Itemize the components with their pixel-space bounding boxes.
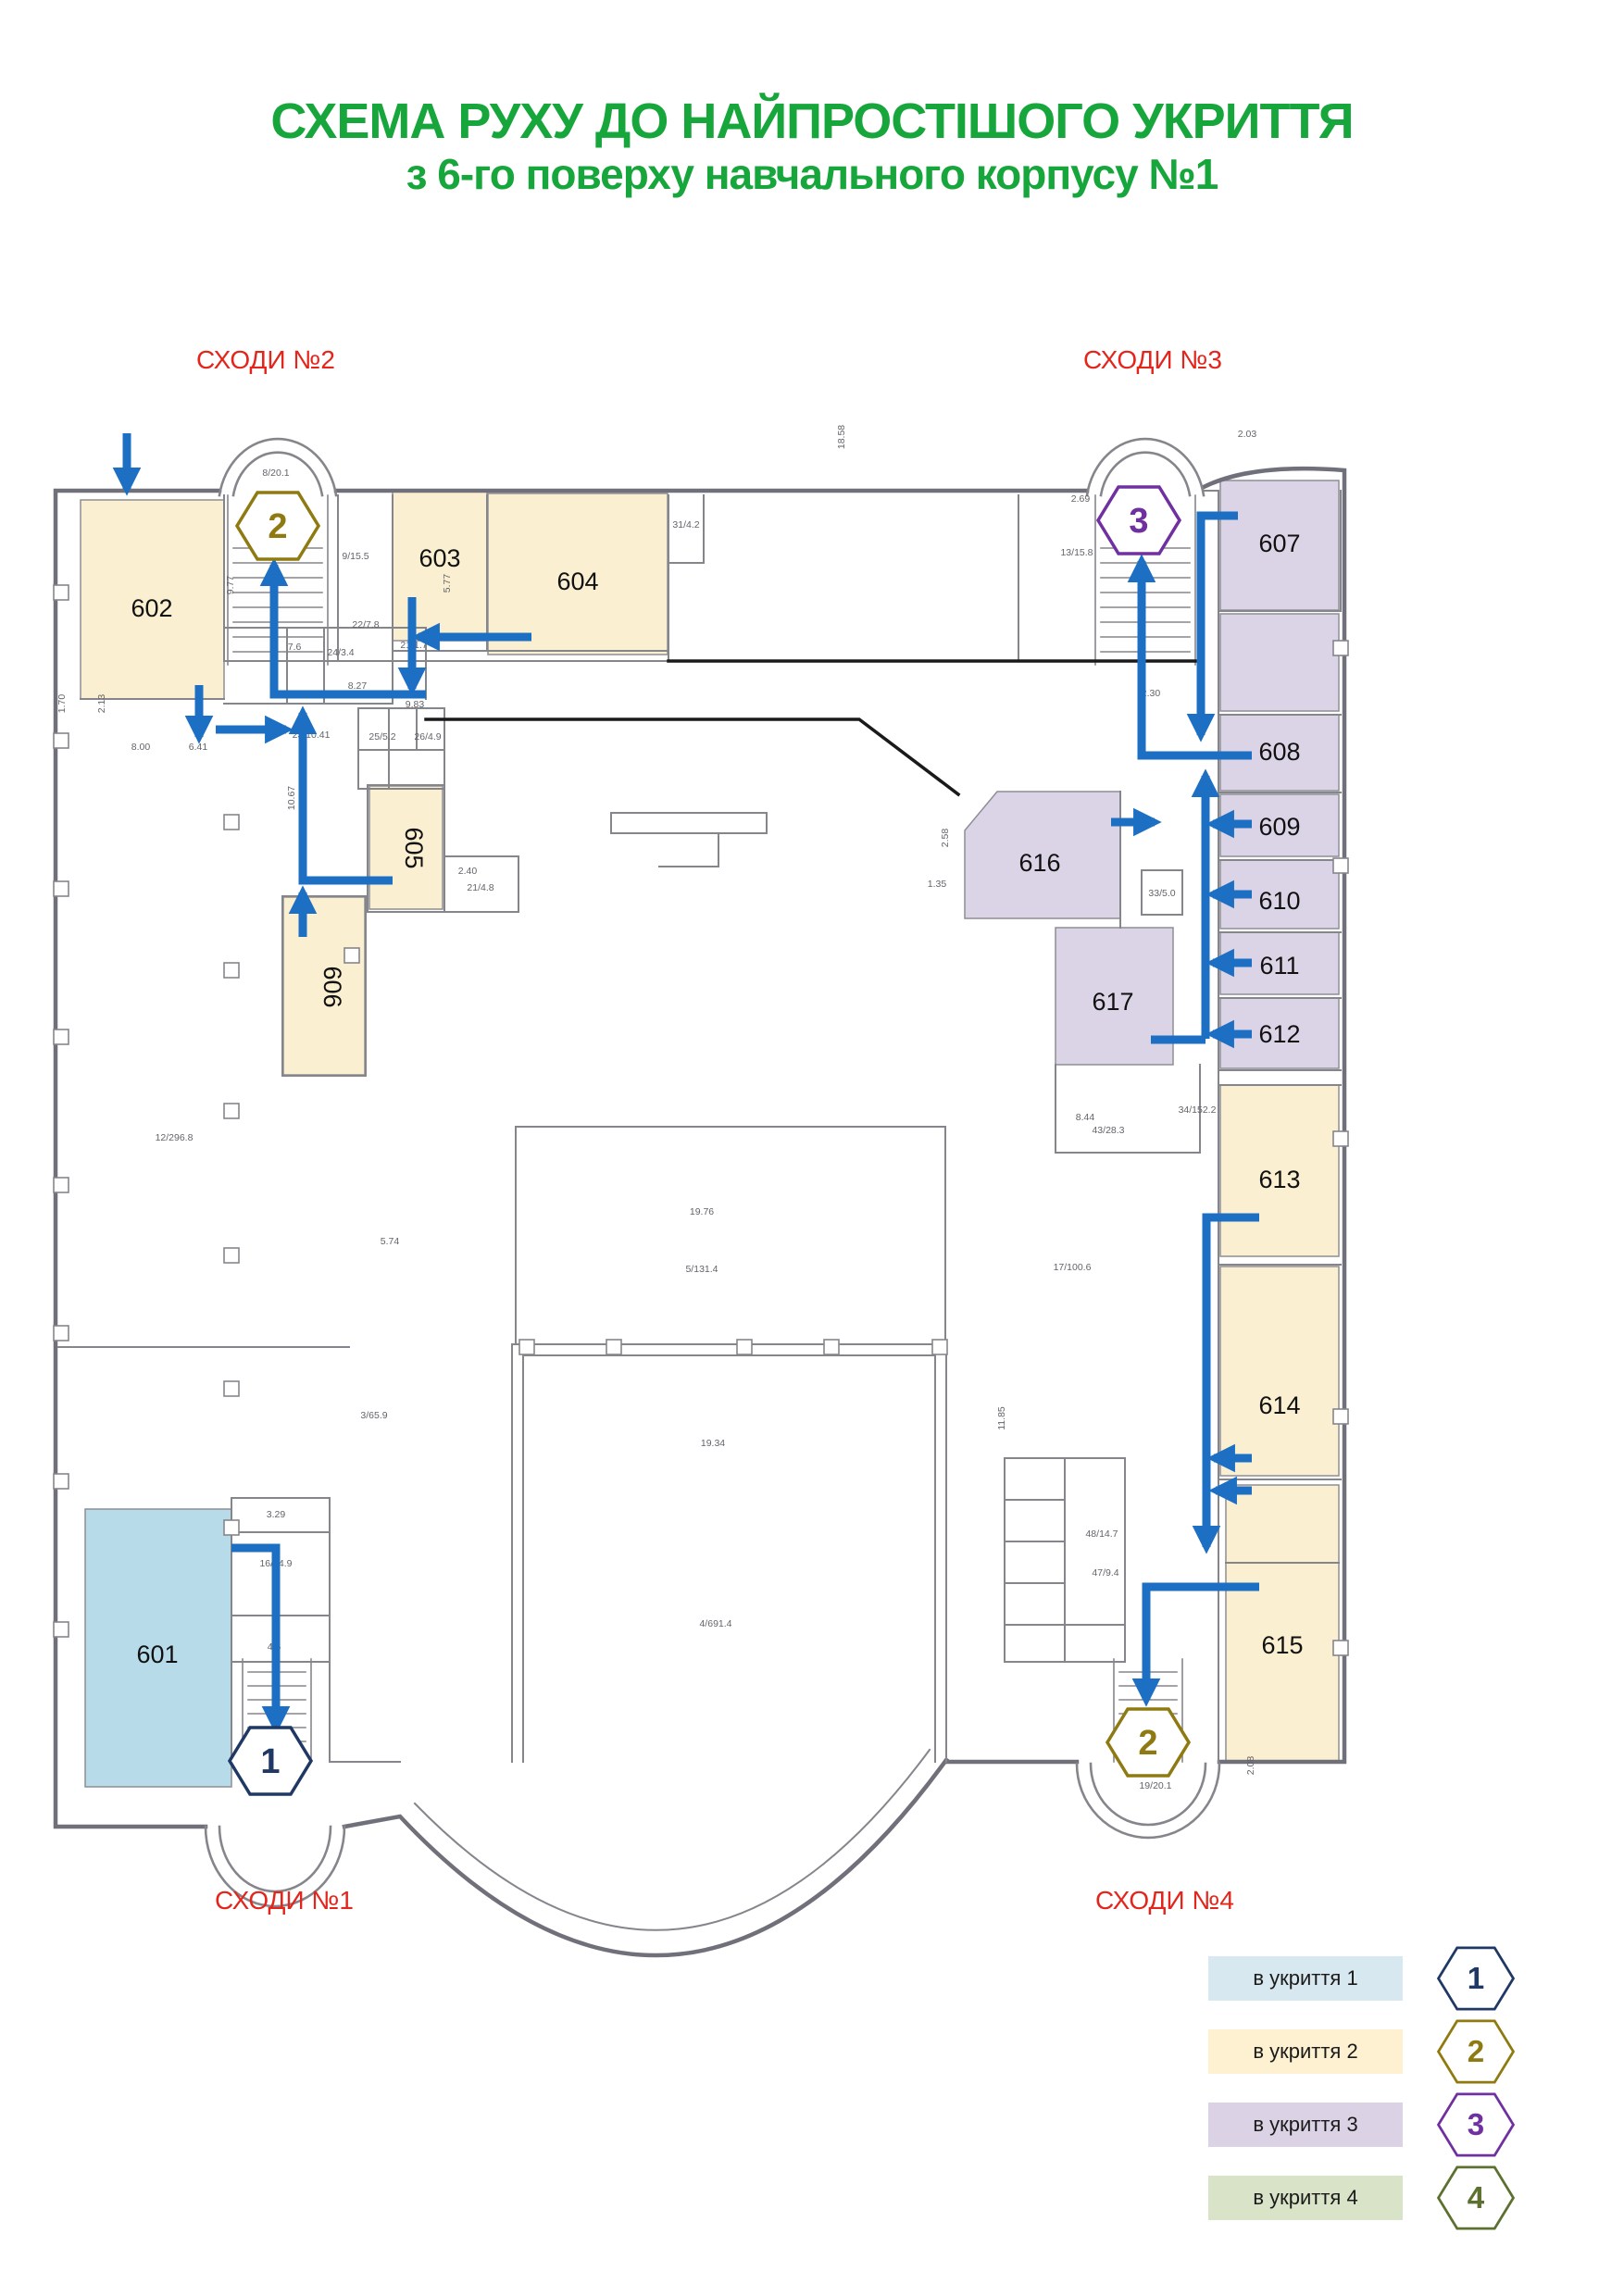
legend-row-shelter-4: в укриття 4 4 xyxy=(1208,2176,1579,2220)
legend-label-shelter-3: в укриття 3 xyxy=(1253,2113,1357,2137)
dimension-label: 21/4.8 xyxy=(467,882,493,893)
shelter-4-badge-icon: 4 xyxy=(1433,2161,1518,2235)
shelter-badge-number-1: 1 xyxy=(260,1742,280,1781)
dimension-label: 13/15.8 xyxy=(1060,547,1093,558)
stairs-4-label: СХОДИ №4 xyxy=(1095,1886,1234,1915)
room-609-number: 609 xyxy=(1258,813,1300,841)
dimension-label: 2.13 xyxy=(96,694,107,714)
dimension-label: 18.58 xyxy=(836,425,847,449)
column-marker xyxy=(932,1340,947,1354)
legend-swatch-shelter-3: в укриття 3 xyxy=(1208,2103,1403,2147)
dimension-label: 33/5.0 xyxy=(1148,888,1175,899)
stairs-3-label: СХОДИ №3 xyxy=(1083,345,1222,374)
dimension-label: 2.03 xyxy=(1238,429,1257,440)
column-marker xyxy=(824,1340,839,1354)
dimension-label: 24/3.4 xyxy=(327,647,354,658)
dimension-label: 22/7.8 xyxy=(352,619,379,630)
dimension-label: 5/131.4 xyxy=(685,1264,718,1275)
dimension-label: 10.67 xyxy=(286,786,297,810)
legend-row-shelter-3: в укриття 3 3 xyxy=(1208,2103,1579,2147)
shelter-badge-number-2: 2 xyxy=(1138,1724,1157,1763)
room-617-number: 617 xyxy=(1092,988,1133,1016)
svg-text:4: 4 xyxy=(1468,2181,1485,2215)
column-marker xyxy=(344,948,359,963)
room-608-number: 608 xyxy=(1258,738,1300,766)
dimension-label: 3/65.9 xyxy=(360,1410,387,1421)
dimension-label: 2.40 xyxy=(458,866,478,877)
column-marker xyxy=(54,1178,69,1192)
dimension-label: 9/15.5 xyxy=(342,551,369,562)
dimension-label: 2.08 xyxy=(1245,1756,1256,1776)
column-marker xyxy=(1333,858,1348,873)
legend-label-shelter-4: в укриття 4 xyxy=(1253,2186,1357,2210)
dimension-label: 19.34 xyxy=(701,1438,725,1449)
column-marker xyxy=(606,1340,621,1354)
columns-layer xyxy=(54,585,1348,1655)
column-marker xyxy=(224,1520,239,1535)
room-613-number: 613 xyxy=(1258,1166,1300,1193)
legend-swatch-shelter-1: в укриття 1 xyxy=(1208,1956,1403,2001)
column-marker xyxy=(737,1340,752,1354)
column-marker xyxy=(1333,1131,1348,1146)
dimension-label: 5.77 xyxy=(442,574,453,593)
column-marker xyxy=(224,1104,239,1118)
inner-facade-arc xyxy=(415,1750,930,1930)
dimension-label: 9.77 xyxy=(225,576,236,595)
column-marker xyxy=(54,1029,69,1044)
room-614-number: 614 xyxy=(1258,1391,1300,1419)
stair-labels-layer: СХОДИ №2СХОДИ №3СХОДИ №1СХОДИ №4 xyxy=(196,345,1234,1915)
column-marker xyxy=(54,585,69,600)
room-606-number: 606 xyxy=(319,966,346,1007)
stairs-1-label: СХОДИ №1 xyxy=(215,1886,354,1915)
dimension-label: 48/14.7 xyxy=(1085,1529,1118,1540)
column-marker xyxy=(1333,1409,1348,1424)
dimension-label: 2.58 xyxy=(940,829,951,848)
floor-plan: 6016026036046056066076086096106116126136… xyxy=(0,0,1624,2296)
room-605-number: 605 xyxy=(400,827,428,868)
stair-steps xyxy=(228,495,1195,1762)
room-607-number: 607 xyxy=(1258,530,1300,557)
shelter-badge-number-3: 3 xyxy=(1129,502,1148,541)
room-610-number: 610 xyxy=(1258,887,1300,915)
column-marker xyxy=(54,733,69,748)
dimension-label: 23/10.41 xyxy=(293,730,331,741)
dimension-label: 7.6 xyxy=(288,642,302,653)
dimension-label: 47/9.4 xyxy=(1092,1567,1118,1578)
room-601-number: 601 xyxy=(136,1641,178,1668)
room-615-number: 615 xyxy=(1261,1631,1303,1659)
legend-row-shelter-1: в укриття 1 1 xyxy=(1208,1956,1579,2001)
svg-text:2: 2 xyxy=(1468,2035,1484,2069)
column-marker xyxy=(224,1248,239,1263)
room-unlabeled-area xyxy=(1220,614,1339,711)
column-marker xyxy=(224,815,239,830)
room-616-number: 616 xyxy=(1018,849,1060,877)
column-marker xyxy=(224,963,239,978)
column-marker xyxy=(54,1326,69,1341)
dimension-label: 8.00 xyxy=(131,742,151,753)
legend: в укриття 1 1 в укриття 2 2 в укриття 3 … xyxy=(1208,1956,1579,2249)
evacuation-arrow xyxy=(231,1548,276,1728)
legend-swatch-shelter-2: в укриття 2 xyxy=(1208,2029,1403,2074)
dimension-label: 3.29 xyxy=(267,1509,286,1520)
column-marker xyxy=(224,1381,239,1396)
evacuation-scheme-page: { "title": { "line1": "СХЕМА РУХУ ДО НАЙ… xyxy=(0,0,1624,2296)
dimension-label: 19/20.1 xyxy=(1139,1780,1171,1791)
column-marker xyxy=(54,1622,69,1637)
shelter-3-badge-icon: 3 xyxy=(1433,2088,1518,2162)
svg-text:1: 1 xyxy=(1468,1962,1484,1996)
dimension-label: 26/4.9 xyxy=(414,731,441,742)
dimension-label: 6.41 xyxy=(189,742,208,753)
room-615-area xyxy=(1226,1485,1339,1762)
dimension-label: 1.70 xyxy=(56,694,68,714)
shelter-2-badge-icon: 2 xyxy=(1433,2015,1518,2089)
shelter-badges-layer: 2312 xyxy=(230,487,1189,1794)
stair-tower-arcs xyxy=(206,439,1219,1906)
dimension-label: 12/296.8 xyxy=(156,1132,194,1143)
dimension-label: 31/4.2 xyxy=(672,519,699,530)
dimension-label: 1.35 xyxy=(928,879,947,890)
room-602-number: 602 xyxy=(131,594,172,622)
dimension-label: 43/28.3 xyxy=(1092,1125,1124,1136)
dimension-label: 11.85 xyxy=(996,1406,1007,1430)
dimension-label: 8.27 xyxy=(348,680,368,692)
shelter-badge-number-2: 2 xyxy=(268,507,287,546)
dimension-label: 17/100.6 xyxy=(1054,1262,1092,1273)
dimension-label: 25/5.2 xyxy=(369,731,395,742)
legend-label-shelter-2: в укриття 2 xyxy=(1253,2040,1357,2064)
shelter-1-badge-icon: 1 xyxy=(1433,1941,1518,2015)
dimension-label: 2.69 xyxy=(1071,493,1091,505)
legend-swatch-shelter-4: в укриття 4 xyxy=(1208,2176,1403,2220)
column-marker xyxy=(1333,1641,1348,1655)
legend-row-shelter-2: в укриття 2 2 xyxy=(1208,2029,1579,2074)
column-marker xyxy=(519,1340,534,1354)
room-603-number: 603 xyxy=(418,544,460,572)
column-marker xyxy=(1333,641,1348,655)
dimension-label: 4/691.4 xyxy=(699,1618,731,1629)
dimension-label: 8/20.1 xyxy=(262,468,289,479)
legend-label-shelter-1: в укриття 1 xyxy=(1253,1966,1357,1990)
stairs-2-label: СХОДИ №2 xyxy=(196,345,335,374)
column-marker xyxy=(54,881,69,896)
room-614-area xyxy=(1220,1267,1339,1476)
dimension-label: 9.83 xyxy=(406,699,425,710)
dimension-label: 8.44 xyxy=(1076,1112,1095,1123)
interior-walls xyxy=(58,491,1341,1762)
room-604-number: 604 xyxy=(556,568,598,595)
room-611-number: 611 xyxy=(1259,952,1299,980)
room-612-number: 612 xyxy=(1258,1020,1300,1048)
dimension-label: 34/152.2 xyxy=(1179,1104,1217,1116)
dimension-label: 19.76 xyxy=(690,1206,714,1217)
column-marker xyxy=(54,1474,69,1489)
dimension-label: 5.74 xyxy=(381,1236,400,1247)
svg-text:3: 3 xyxy=(1468,2108,1484,2142)
corridor-heavy-walls xyxy=(426,661,1200,794)
